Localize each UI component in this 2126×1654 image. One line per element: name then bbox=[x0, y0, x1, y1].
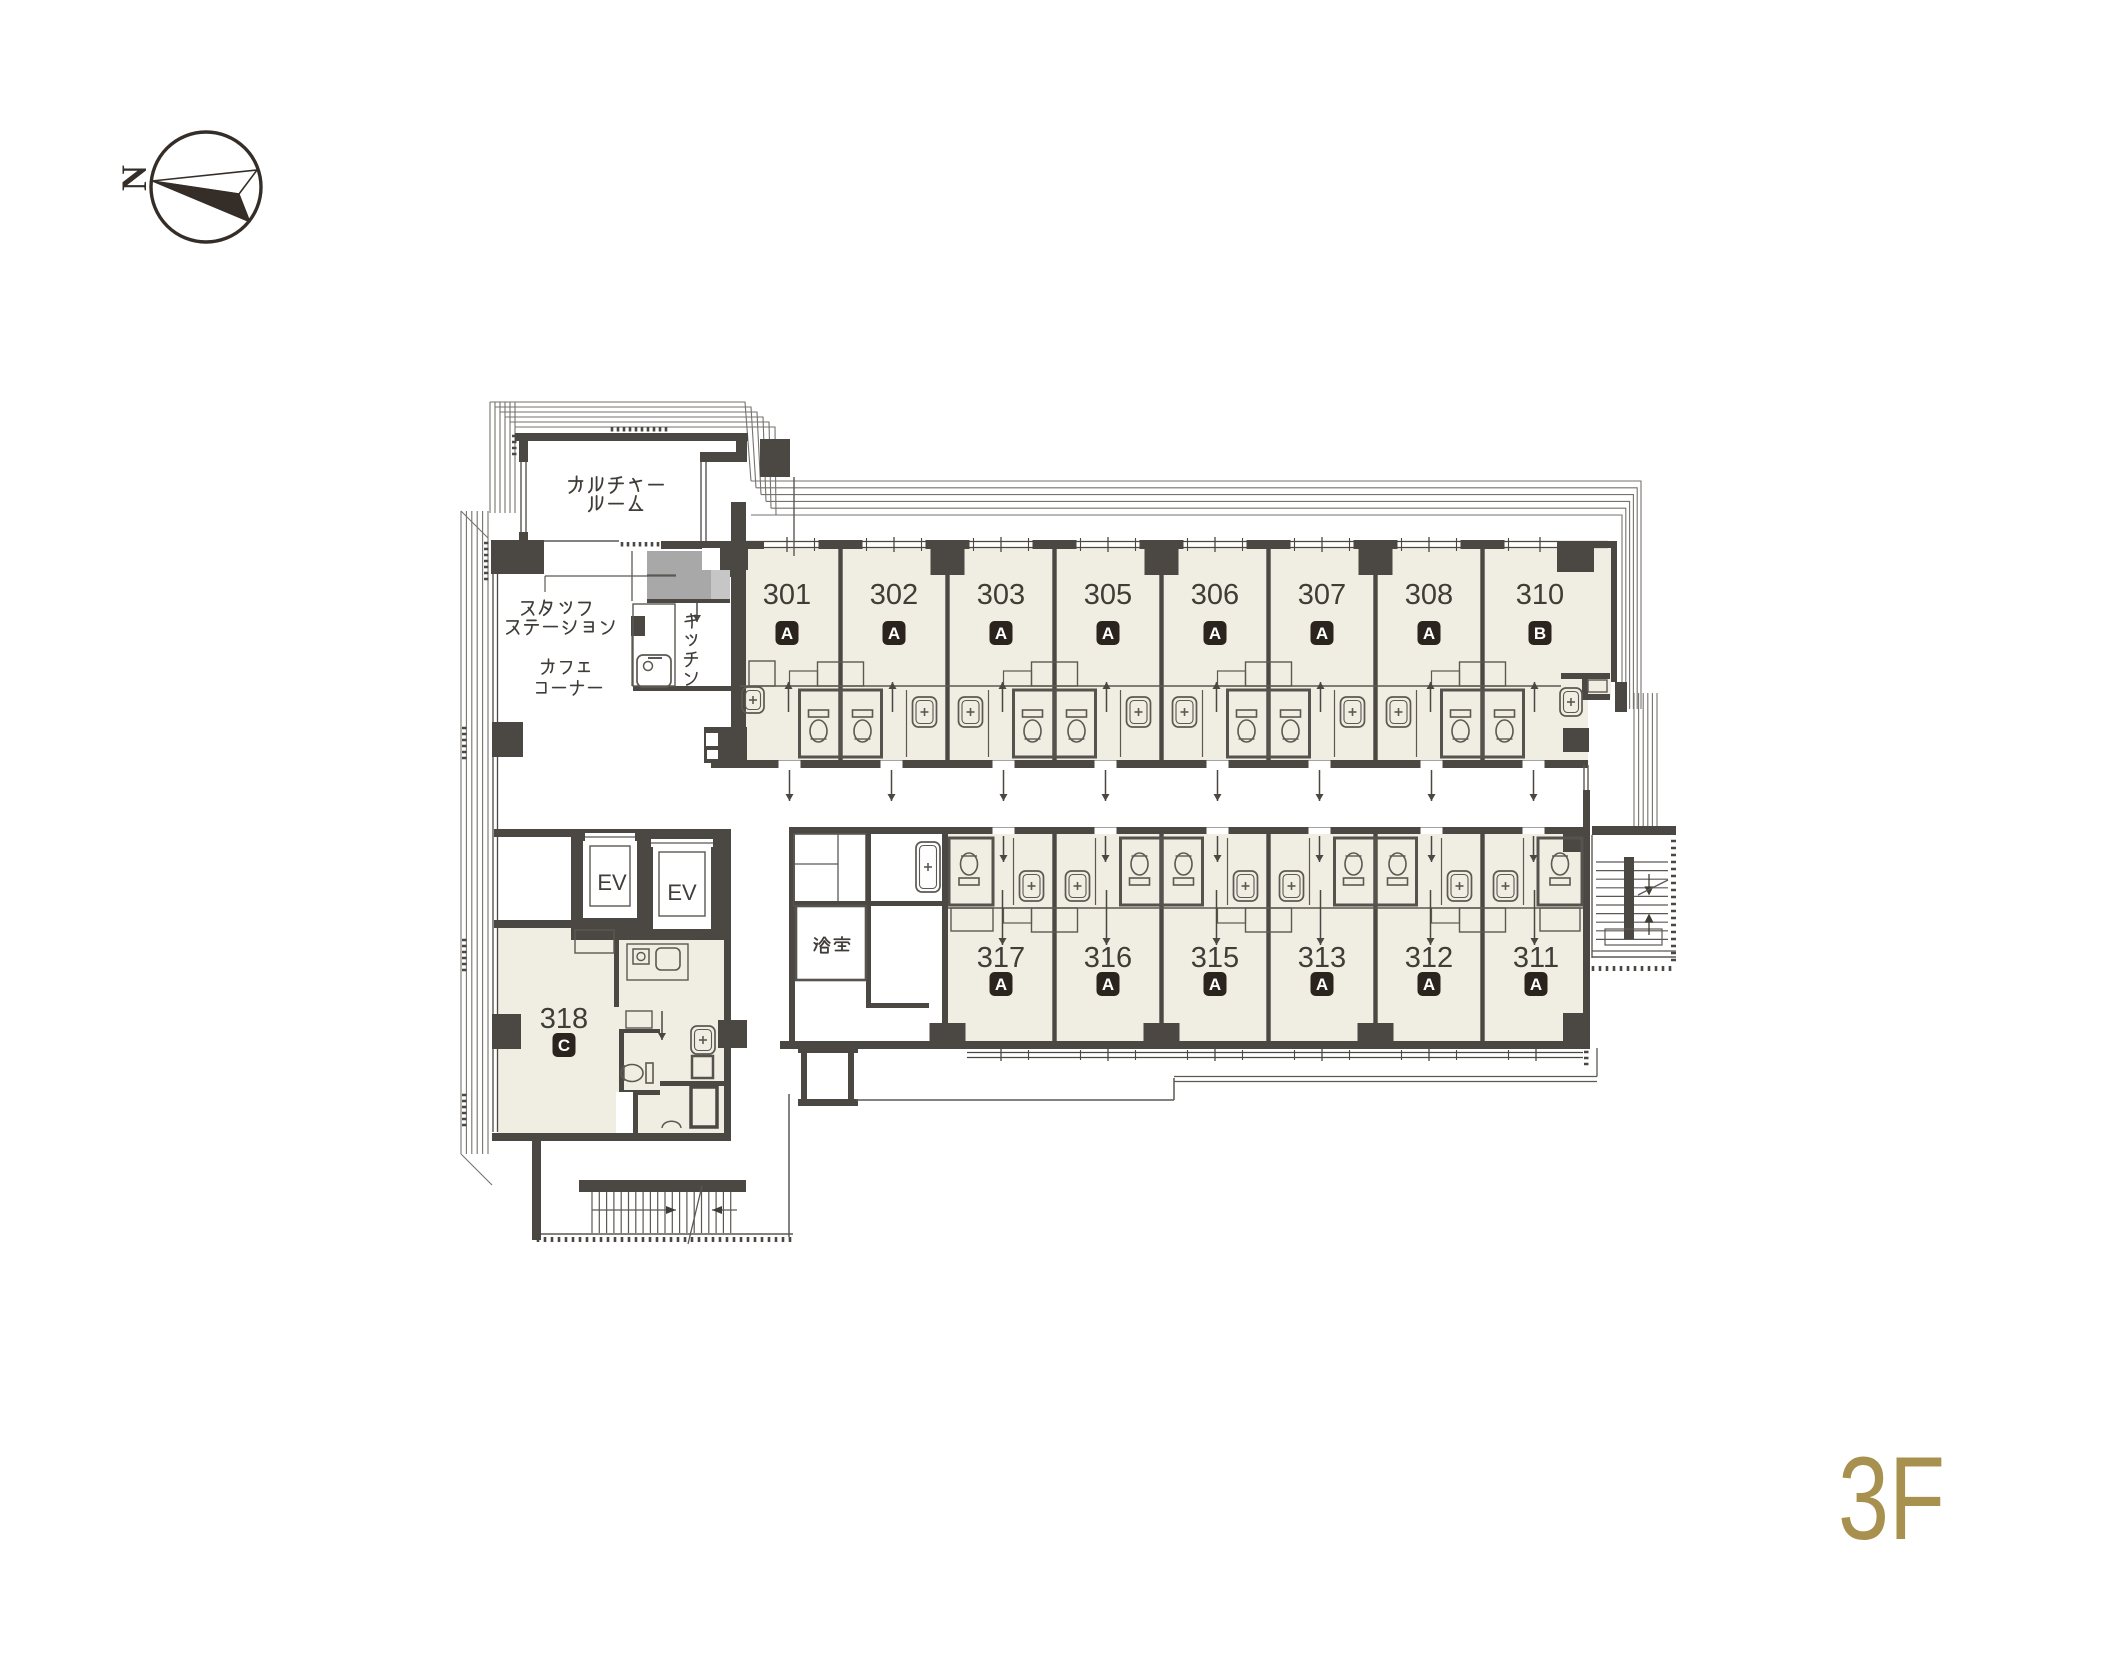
svg-text:311: 311 bbox=[1513, 942, 1559, 974]
svg-text:316: 316 bbox=[1084, 942, 1132, 974]
svg-text:310: 310 bbox=[1516, 579, 1564, 611]
svg-text:318: 318 bbox=[540, 1003, 588, 1035]
svg-text:306: 306 bbox=[1191, 579, 1239, 611]
svg-text:A: A bbox=[1102, 624, 1114, 643]
svg-text:B: B bbox=[1534, 624, 1546, 643]
svg-text:305: 305 bbox=[1084, 579, 1132, 611]
svg-text:A: A bbox=[1423, 975, 1435, 994]
svg-text:307: 307 bbox=[1298, 579, 1346, 611]
svg-text:317: 317 bbox=[977, 942, 1025, 974]
svg-text:3F: 3F bbox=[1838, 1433, 1945, 1565]
svg-text:301: 301 bbox=[763, 579, 811, 611]
svg-text:N: N bbox=[114, 165, 154, 191]
svg-text:A: A bbox=[1209, 624, 1221, 643]
svg-text:A: A bbox=[1530, 975, 1542, 994]
svg-text:308: 308 bbox=[1405, 579, 1453, 611]
svg-text:303: 303 bbox=[977, 579, 1025, 611]
svg-text:A: A bbox=[1102, 975, 1114, 994]
svg-text:A: A bbox=[995, 624, 1007, 643]
svg-text:315: 315 bbox=[1191, 942, 1239, 974]
svg-text:EV: EV bbox=[667, 880, 697, 905]
svg-text:A: A bbox=[1209, 975, 1221, 994]
svg-text:A: A bbox=[1316, 975, 1328, 994]
svg-text:A: A bbox=[888, 624, 900, 643]
svg-text:A: A bbox=[1316, 624, 1328, 643]
svg-text:A: A bbox=[781, 624, 793, 643]
svg-text:A: A bbox=[1423, 624, 1435, 643]
svg-text:C: C bbox=[558, 1036, 570, 1055]
svg-text:312: 312 bbox=[1405, 942, 1453, 974]
svg-text:A: A bbox=[995, 975, 1007, 994]
svg-text:313: 313 bbox=[1298, 942, 1346, 974]
svg-text:EV: EV bbox=[597, 870, 627, 895]
svg-text:302: 302 bbox=[870, 579, 918, 611]
